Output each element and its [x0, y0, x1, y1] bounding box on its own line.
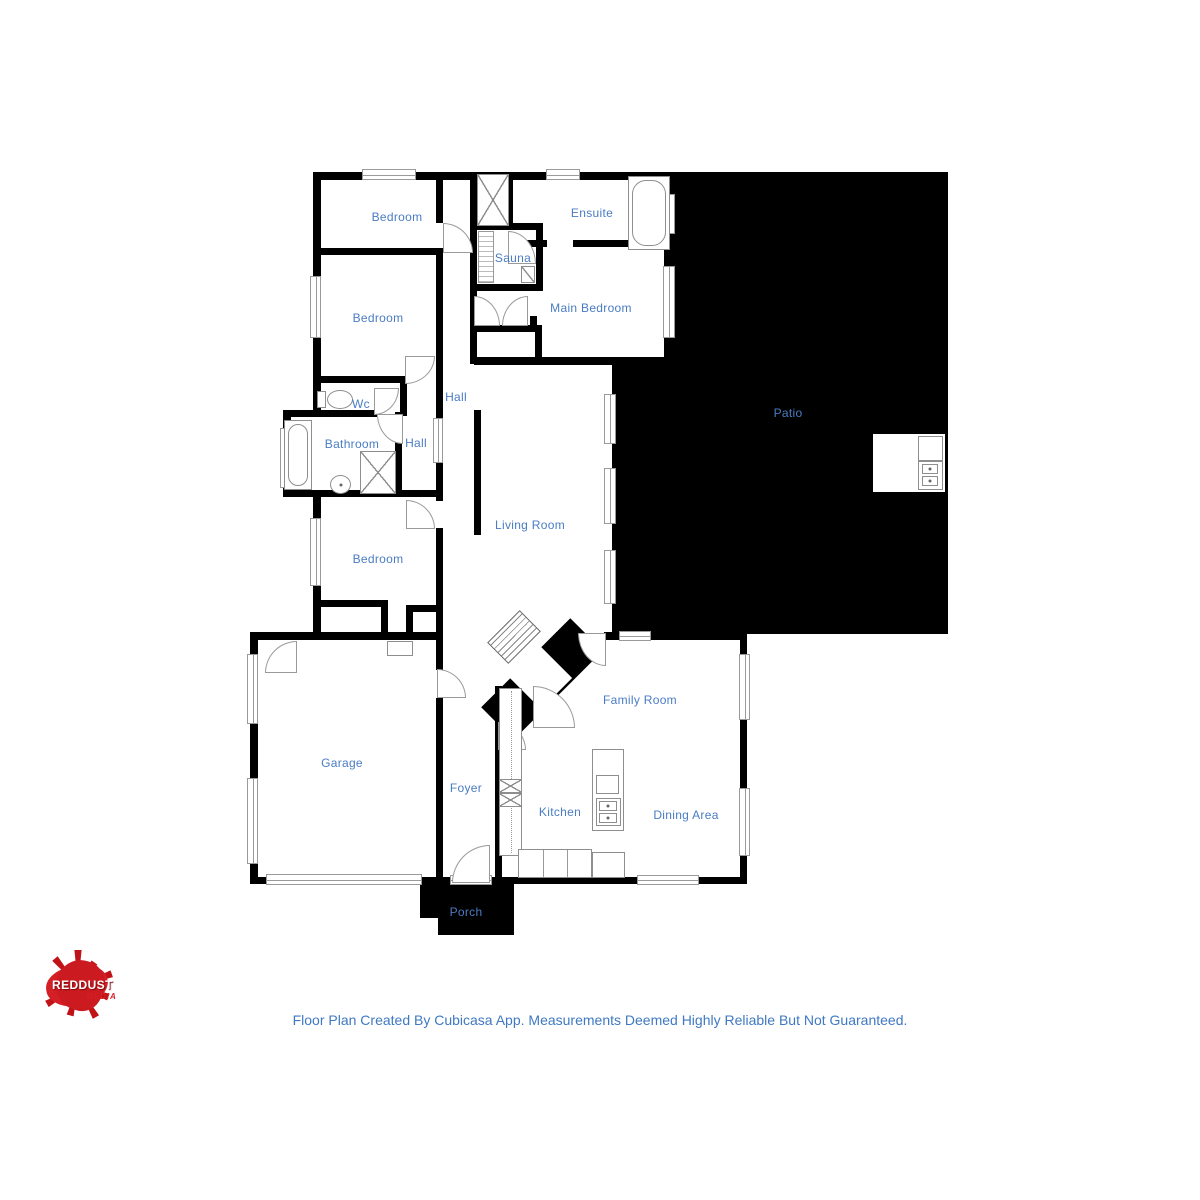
floor-plan-page: Bedroom Ensuite Sauna Main Bedroom Bedro… — [0, 0, 1200, 1200]
room-label-kitchen: Kitchen — [539, 805, 581, 819]
room-label-foyer: Foyer — [450, 781, 482, 795]
logo-wordmark: REDDUST — [52, 978, 113, 992]
toilet-icon — [317, 391, 326, 408]
room-label-living-room: Living Room — [495, 518, 565, 532]
room-label-garage: Garage — [321, 756, 363, 770]
bathtub-icon — [628, 176, 670, 250]
window — [739, 788, 750, 856]
wall — [381, 600, 388, 639]
room-label-bathroom: Bathroom — [325, 437, 379, 451]
door-arc — [406, 500, 435, 529]
wall — [313, 376, 408, 383]
wall — [536, 223, 543, 291]
sauna-bench-icon — [478, 231, 494, 283]
cased-opening — [433, 418, 443, 463]
wall — [316, 600, 388, 607]
shower-icon — [477, 174, 509, 226]
wall — [436, 463, 443, 501]
outdoor-counter-icon — [918, 436, 943, 461]
door-arc — [265, 641, 297, 673]
red-dust-media-logo: REDDUST MEDIA — [34, 954, 134, 1016]
closet — [470, 325, 542, 364]
garage-door — [266, 874, 422, 885]
porch-step — [420, 884, 438, 918]
wall — [400, 380, 407, 416]
door-arc — [374, 388, 399, 415]
room-label-dining-area: Dining Area — [653, 808, 718, 822]
window — [362, 169, 416, 180]
wall — [313, 248, 443, 255]
room-label-bedroom-top: Bedroom — [372, 210, 423, 224]
window — [247, 654, 258, 724]
shower-icon — [360, 451, 396, 494]
logo-tagline: MEDIA — [86, 992, 117, 1001]
island-hob-icon — [596, 775, 619, 794]
room-label-wc: Wc — [352, 397, 370, 411]
stove-icon — [499, 793, 522, 807]
wall — [436, 528, 443, 608]
wall — [436, 253, 443, 418]
window — [604, 468, 616, 524]
water-heater-icon — [387, 641, 413, 656]
disclaimer-text: Floor Plan Created By Cubicasa App. Meas… — [0, 1012, 1200, 1028]
sauna-shower-icon — [521, 266, 535, 283]
wall — [470, 172, 477, 292]
room-label-patio: Patio — [774, 406, 803, 420]
door-arc — [443, 223, 473, 253]
stove-icon — [499, 779, 522, 793]
wall — [436, 698, 443, 884]
wall — [470, 284, 543, 291]
kitchen-counter-icon — [518, 849, 592, 878]
door-arc — [502, 296, 528, 326]
door-arc — [437, 669, 466, 698]
wall — [492, 877, 747, 884]
refrigerator-icon — [592, 852, 625, 878]
door-arc — [474, 296, 500, 326]
patio-area — [672, 172, 948, 368]
room-label-sauna: Sauna — [495, 251, 531, 265]
window — [310, 276, 321, 338]
room-label-bedroom-lower: Bedroom — [353, 552, 404, 566]
kitchen-counter-icon — [499, 688, 522, 856]
window — [739, 654, 750, 720]
window — [637, 875, 699, 885]
window — [546, 169, 580, 180]
bathtub-icon — [284, 420, 312, 490]
room-label-porch: Porch — [450, 905, 483, 919]
room-label-ensuite: Ensuite — [571, 206, 613, 220]
room-label-hall-lower: Hall — [405, 436, 427, 450]
sink-icon — [330, 475, 351, 494]
window — [247, 778, 258, 864]
window — [604, 394, 616, 444]
front-door-arc — [452, 845, 490, 883]
wall — [436, 172, 443, 223]
wall — [436, 640, 443, 670]
wall — [313, 410, 377, 417]
outdoor-sink-icon — [918, 461, 943, 490]
door-arc — [377, 414, 403, 444]
toilet-icon — [327, 390, 353, 409]
room-label-bedroom-middle: Bedroom — [353, 311, 404, 325]
room-label-family-room: Family Room — [603, 693, 677, 707]
window — [604, 550, 616, 604]
partial-wall — [474, 410, 481, 535]
window — [310, 518, 321, 586]
wall — [250, 632, 443, 640]
door-arc — [405, 356, 435, 384]
room-label-main-bedroom: Main Bedroom — [550, 301, 632, 315]
window — [619, 631, 651, 641]
room-label-hall-upper: Hall — [445, 390, 467, 404]
island-sink-icon — [596, 798, 621, 826]
window — [663, 266, 675, 338]
